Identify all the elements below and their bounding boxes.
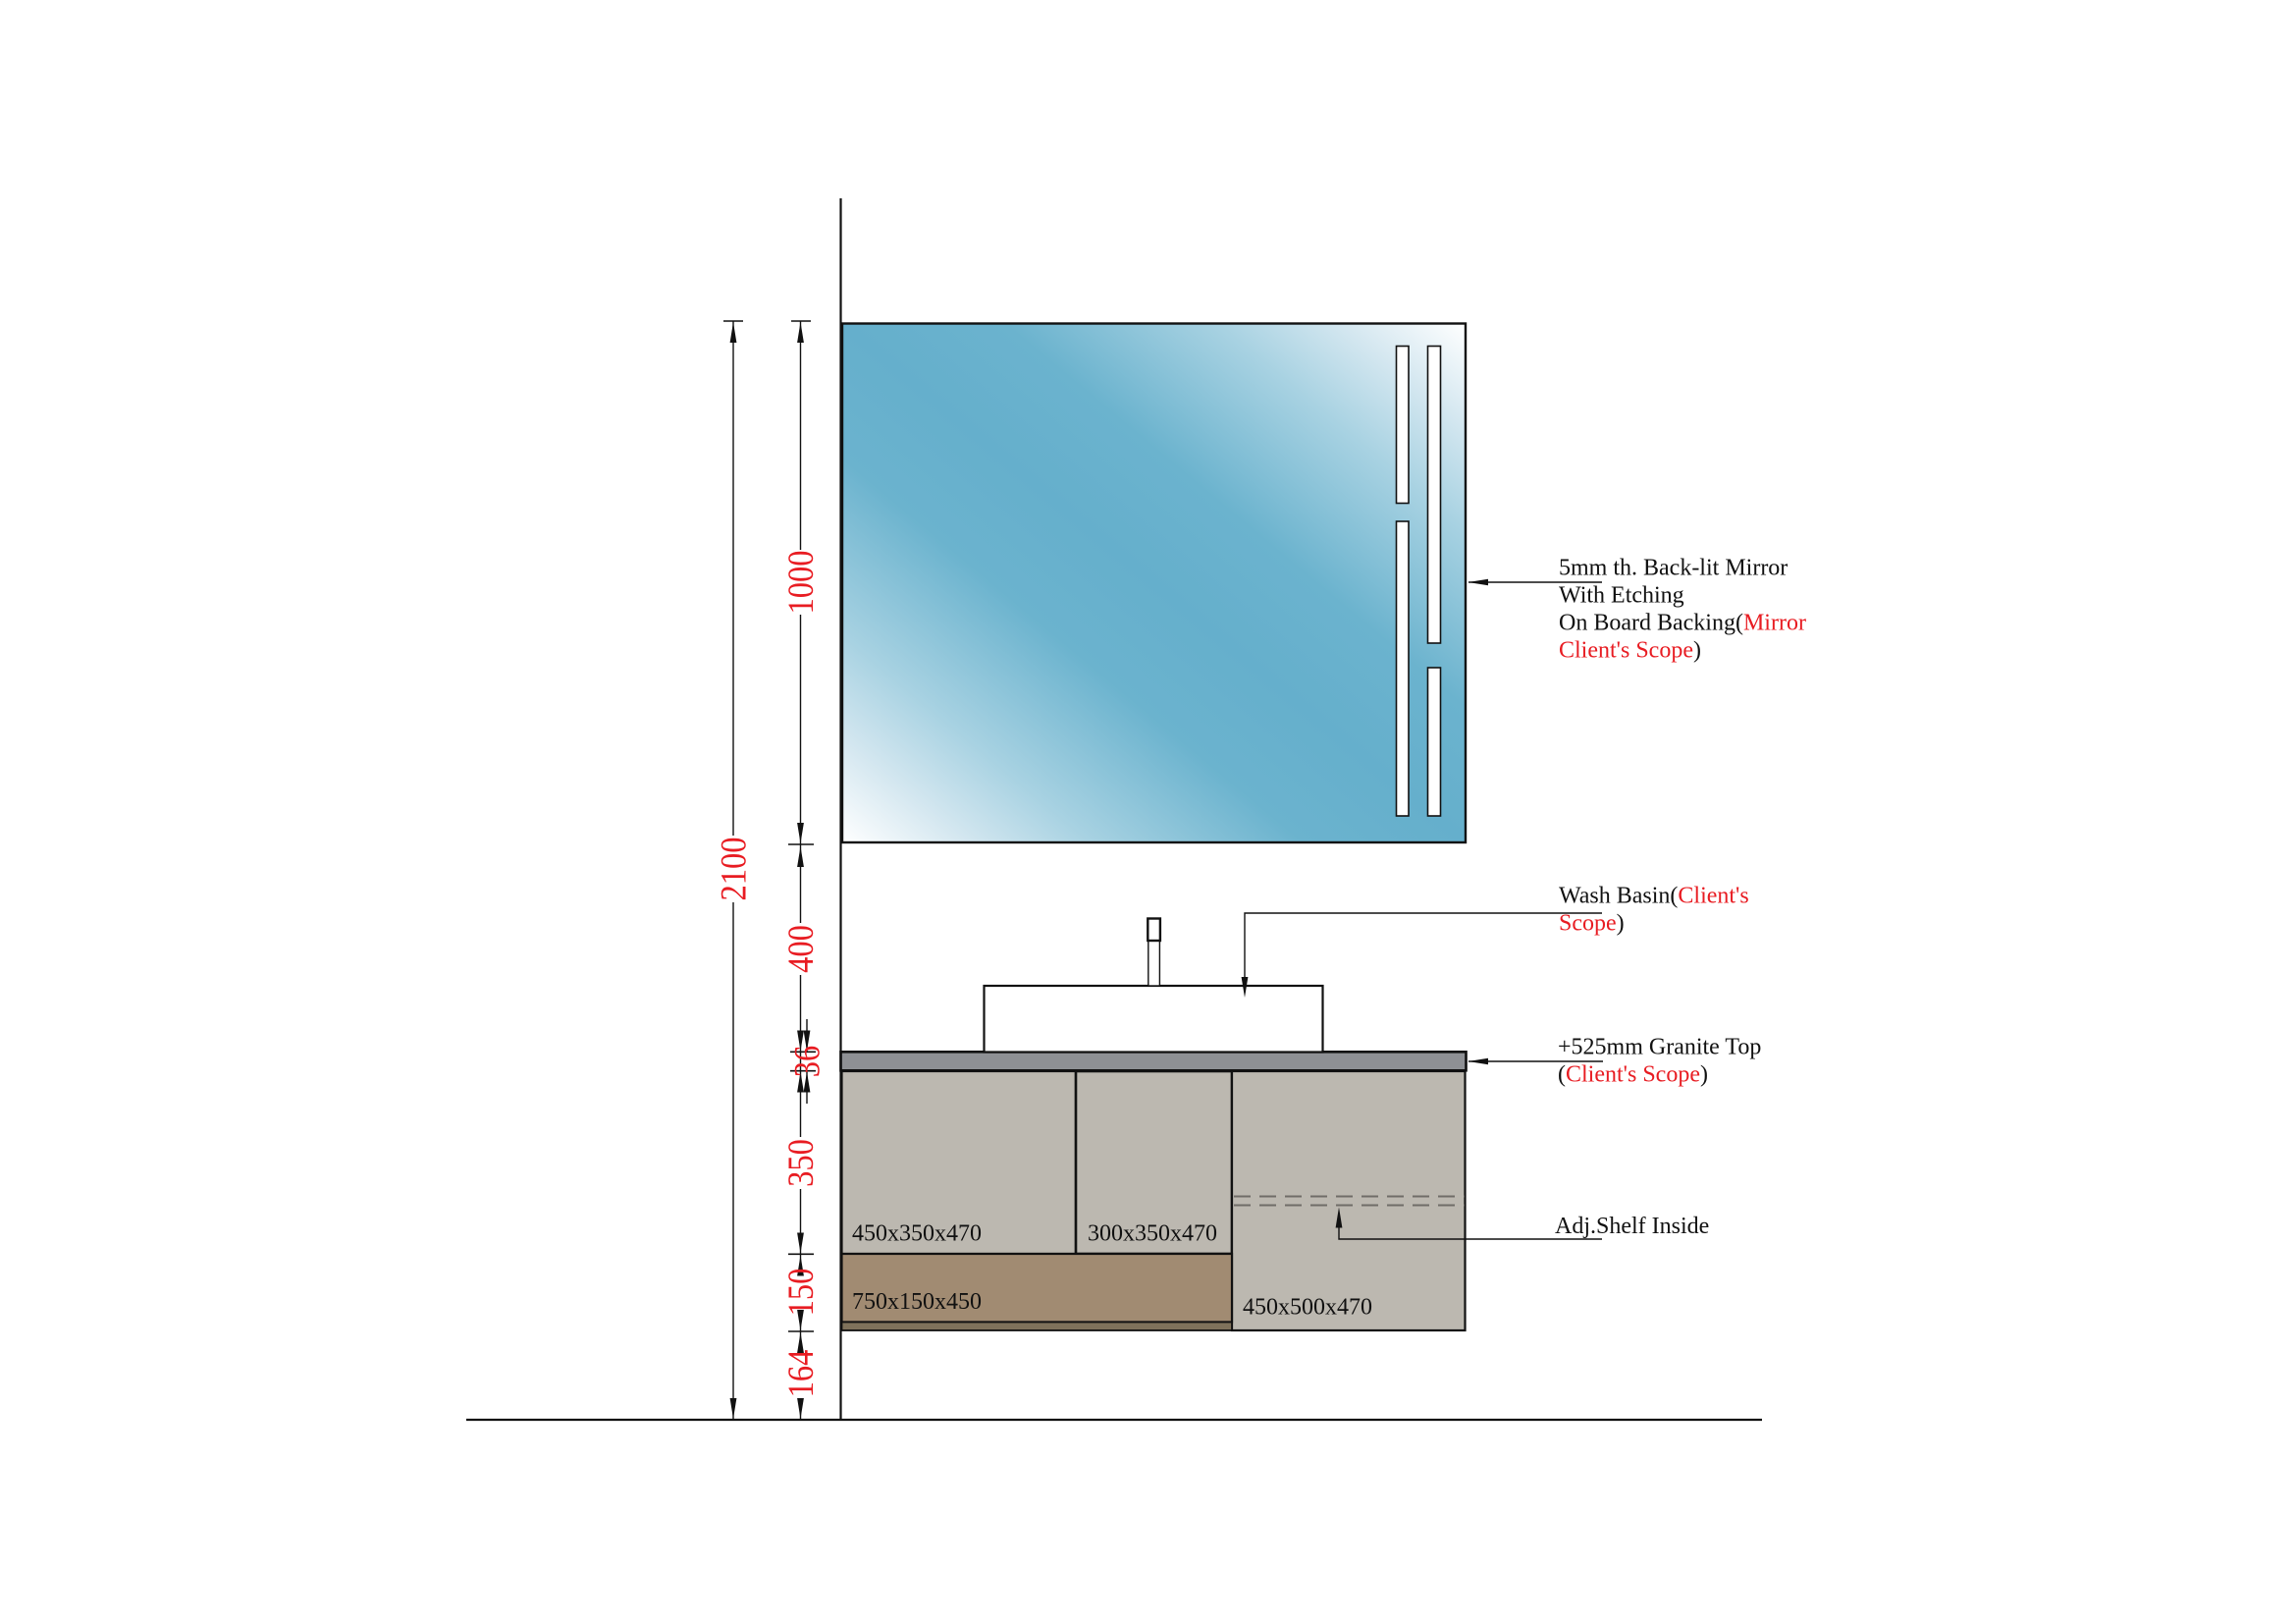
svg-text:5mm th. Back-lit Mirror: 5mm th. Back-lit Mirror (1559, 556, 1788, 581)
svg-text:150: 150 (780, 1269, 821, 1317)
svg-text:36: 36 (787, 1046, 828, 1078)
svg-text:450x350x470: 450x350x470 (852, 1221, 982, 1247)
svg-text:Wash Basin(Client's: Wash Basin(Client's (1559, 884, 1749, 909)
svg-text:350: 350 (780, 1139, 821, 1187)
svg-text:With Etching: With Etching (1559, 583, 1684, 609)
svg-text:Scope): Scope) (1559, 911, 1625, 937)
svg-text:1000: 1000 (780, 550, 821, 614)
svg-text:400: 400 (780, 925, 821, 973)
svg-text:300x350x470: 300x350x470 (1088, 1221, 1217, 1247)
svg-text:Adj.Shelf Inside: Adj.Shelf Inside (1555, 1214, 1709, 1239)
svg-text:Client's Scope): Client's Scope) (1559, 638, 1701, 664)
svg-text:450x500x470: 450x500x470 (1243, 1295, 1372, 1321)
svg-text:(Client's Scope): (Client's Scope) (1558, 1062, 1708, 1088)
svg-text:750x150x450: 750x150x450 (852, 1289, 982, 1315)
svg-text:2100: 2100 (714, 837, 754, 900)
svg-text:+525mm Granite Top: +525mm Granite Top (1558, 1035, 1761, 1060)
svg-text:On Board Backing(Mirror: On Board Backing(Mirror (1559, 611, 1806, 636)
svg-text:164: 164 (780, 1350, 821, 1398)
